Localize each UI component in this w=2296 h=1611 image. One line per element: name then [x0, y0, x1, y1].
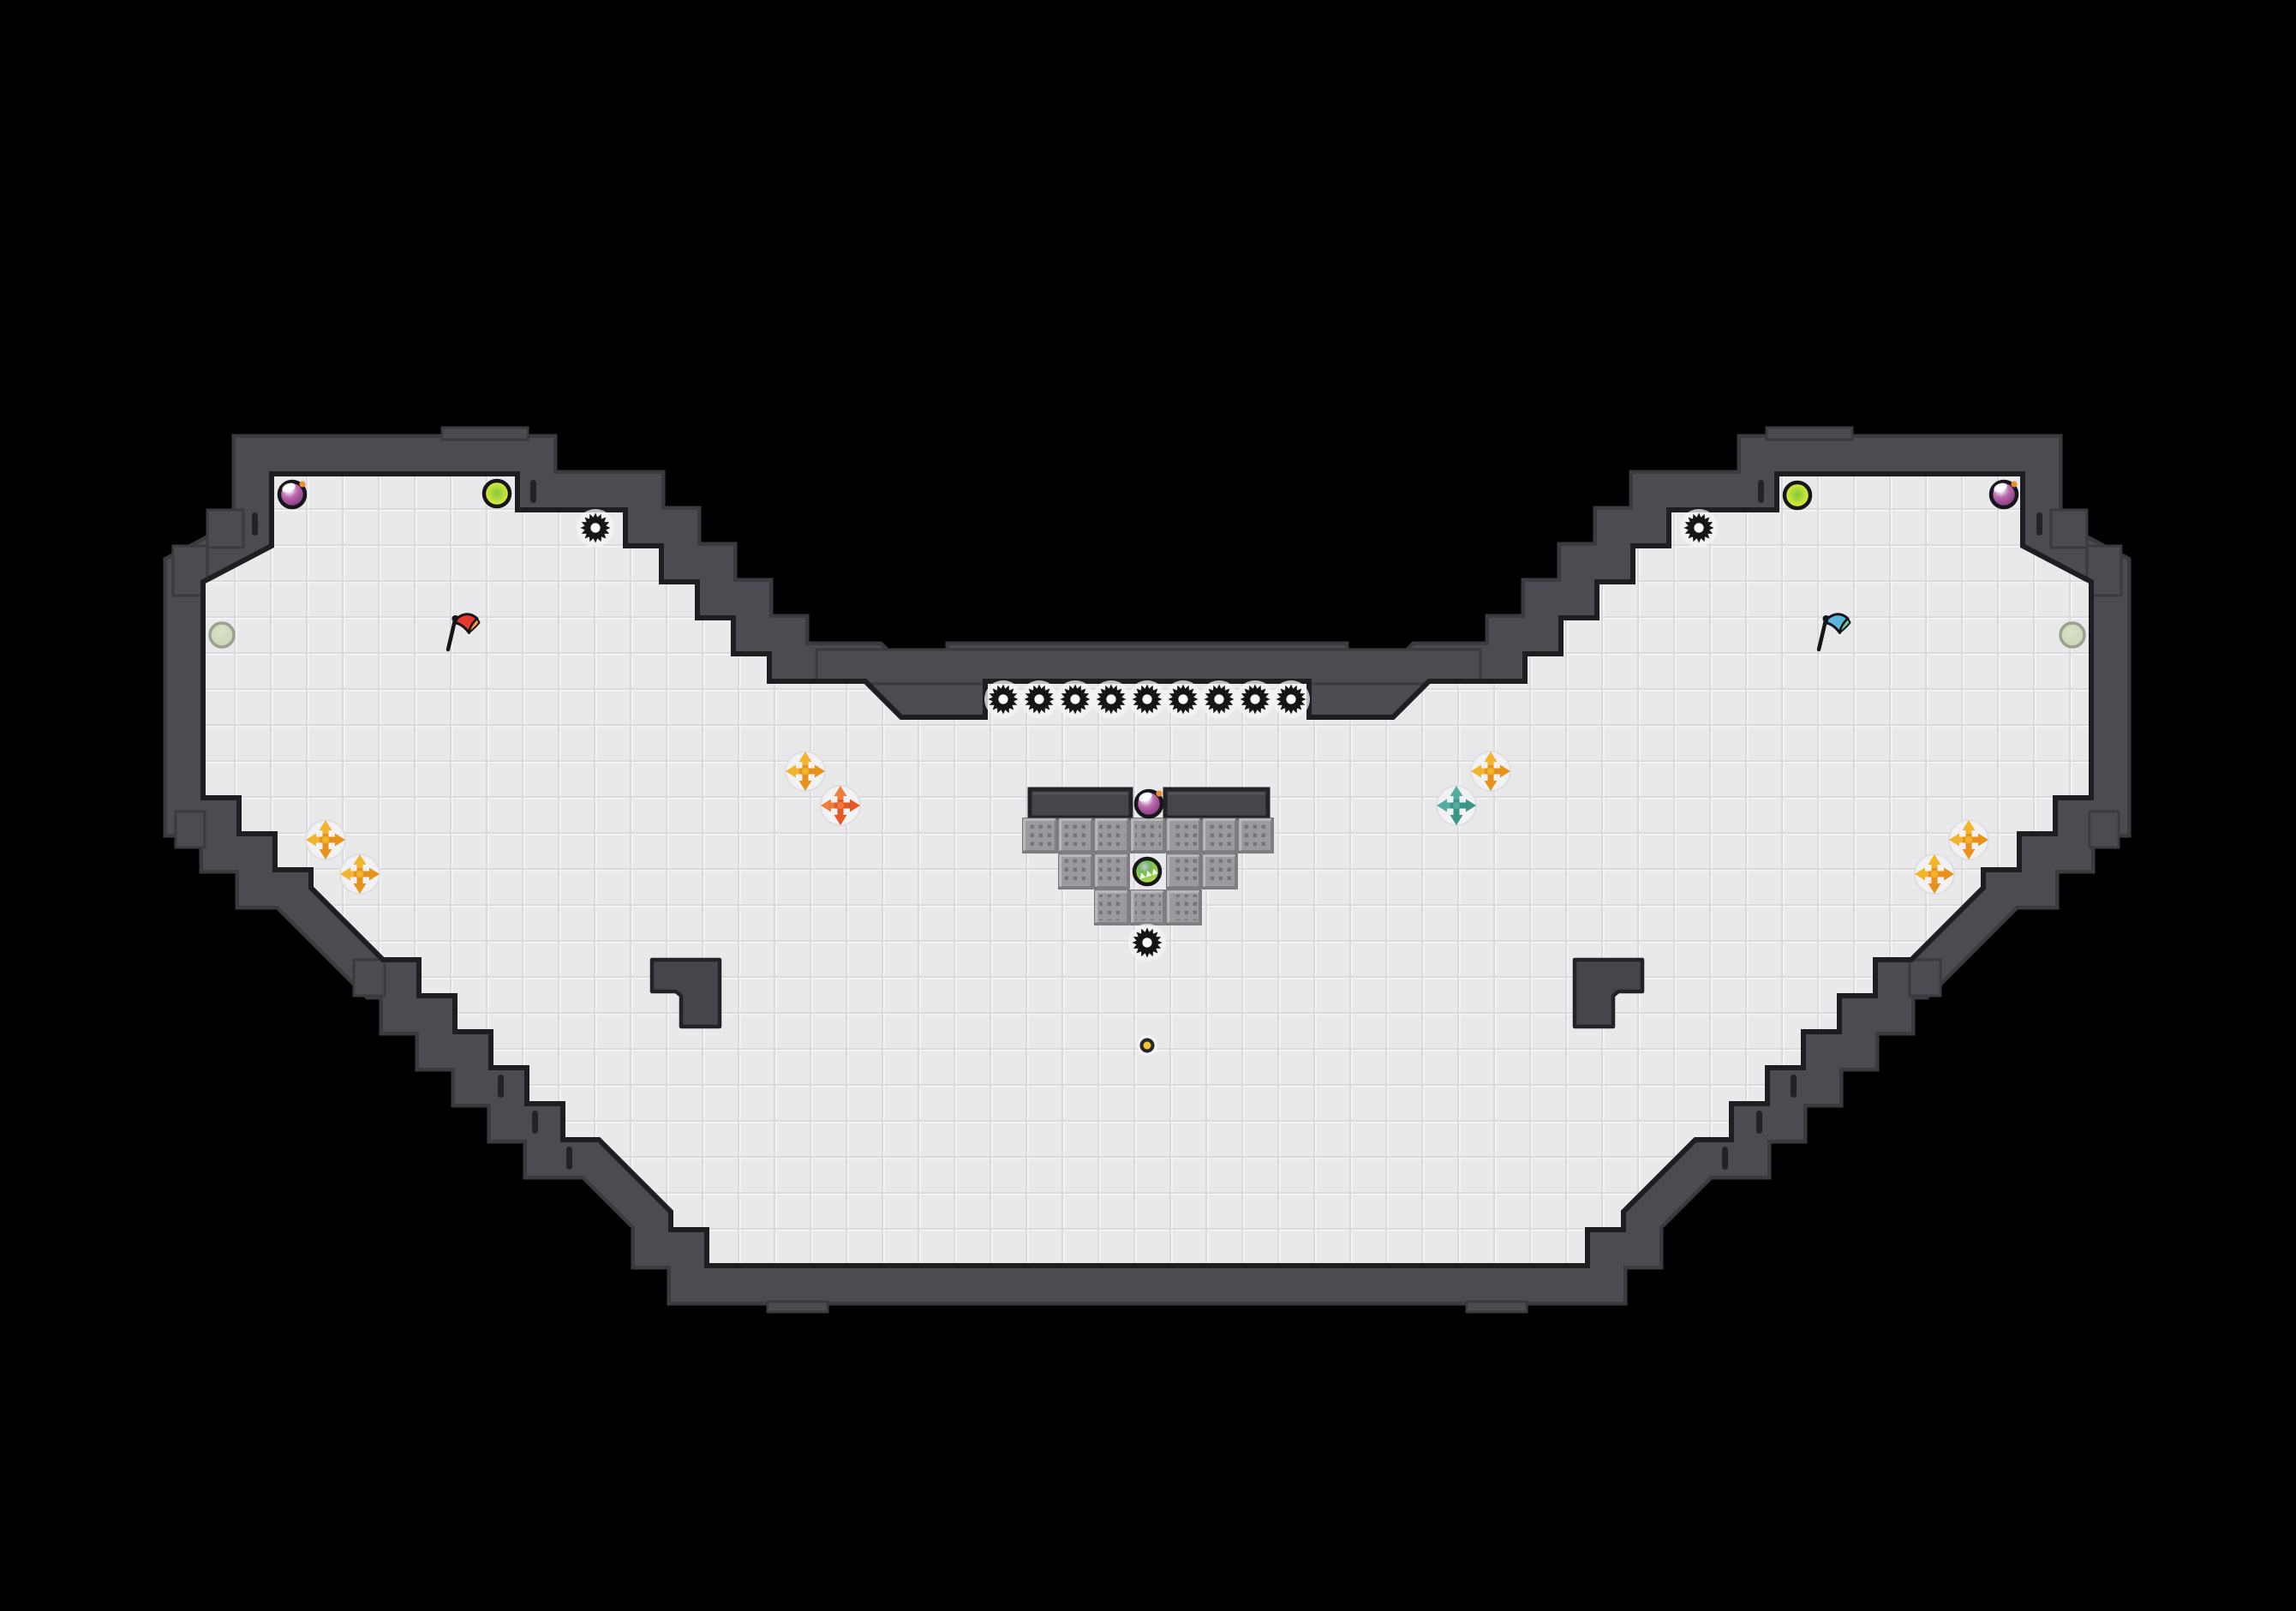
- gear-icon: [1272, 680, 1310, 718]
- wall-patch: [2051, 510, 2087, 548]
- wall-tick: [532, 1111, 538, 1134]
- launch-cross-yellow: [786, 752, 825, 791]
- dotted-block: [1095, 890, 1129, 925]
- gear-icon: [1680, 509, 1718, 547]
- wall-tick: [2036, 512, 2042, 536]
- coin: [1137, 1035, 1157, 1056]
- dotted-block: [1167, 890, 1201, 925]
- bomb-ball: [1136, 790, 1163, 817]
- green-ball: [1134, 859, 1160, 884]
- lime-ball: [1785, 482, 1810, 508]
- dotted-block: [1239, 818, 1273, 853]
- wall-patch: [442, 428, 528, 440]
- dotted-block: [1059, 818, 1093, 853]
- dotted-block: [1131, 818, 1165, 853]
- pale-ball: [2060, 623, 2084, 647]
- wall-tick: [498, 1075, 504, 1098]
- level-map-canvas[interactable]: [0, 0, 2296, 1611]
- level-map-svg: [0, 0, 2296, 1611]
- bomb-ball: [1991, 481, 2018, 507]
- launch-cross-orange: [821, 786, 860, 825]
- wall-patch: [1467, 1302, 1527, 1312]
- pale-ball: [210, 623, 234, 647]
- gear-icon: [577, 509, 614, 547]
- dotted-block: [1203, 854, 1237, 889]
- wall-tick: [1756, 1111, 1762, 1134]
- gear-icon: [1164, 680, 1202, 718]
- dotted-block: [1203, 818, 1237, 853]
- wall-patch: [176, 811, 205, 847]
- gear-icon: [1236, 680, 1274, 718]
- launch-cross-yellow: [340, 854, 380, 894]
- dark-bar-block: [1030, 789, 1131, 817]
- lime-ball: [484, 481, 510, 506]
- wall-patch: [354, 960, 385, 996]
- dotted-block: [1131, 890, 1165, 925]
- launch-cross-yellow: [1471, 752, 1510, 791]
- dark-bar-block: [1165, 789, 1268, 817]
- launch-cross-yellow: [1915, 854, 1954, 894]
- bomb-ball: [279, 481, 306, 507]
- wall-tick: [566, 1147, 572, 1170]
- dotted-block: [1095, 854, 1129, 889]
- gear-icon: [1020, 680, 1058, 718]
- wall-tick: [530, 480, 536, 503]
- gear-icon: [1128, 680, 1166, 718]
- dotted-block: [1095, 818, 1129, 853]
- wall-patch: [1910, 960, 1940, 996]
- wall-tick: [1791, 1075, 1797, 1098]
- gear-icon: [1092, 680, 1130, 718]
- dotted-block: [1059, 854, 1093, 889]
- gear-icon: [1128, 924, 1166, 961]
- gear-icon: [1200, 680, 1238, 718]
- gear-icon: [984, 680, 1022, 718]
- wall-tick: [252, 512, 258, 536]
- gear-icon: [1056, 680, 1094, 718]
- wall-patch: [207, 510, 243, 548]
- launch-cross-yellow: [306, 820, 345, 859]
- dotted-block: [1167, 818, 1201, 853]
- wall-patch: [2090, 811, 2119, 847]
- wall-tick: [1758, 480, 1764, 503]
- wall-patch: [768, 1302, 828, 1312]
- launch-cross-teal: [1437, 786, 1476, 825]
- wall-tick: [1722, 1147, 1728, 1170]
- wall-patch: [1767, 428, 1852, 440]
- dotted-block: [1167, 854, 1201, 889]
- dotted-block: [1023, 818, 1057, 853]
- launch-cross-yellow: [1949, 820, 1988, 859]
